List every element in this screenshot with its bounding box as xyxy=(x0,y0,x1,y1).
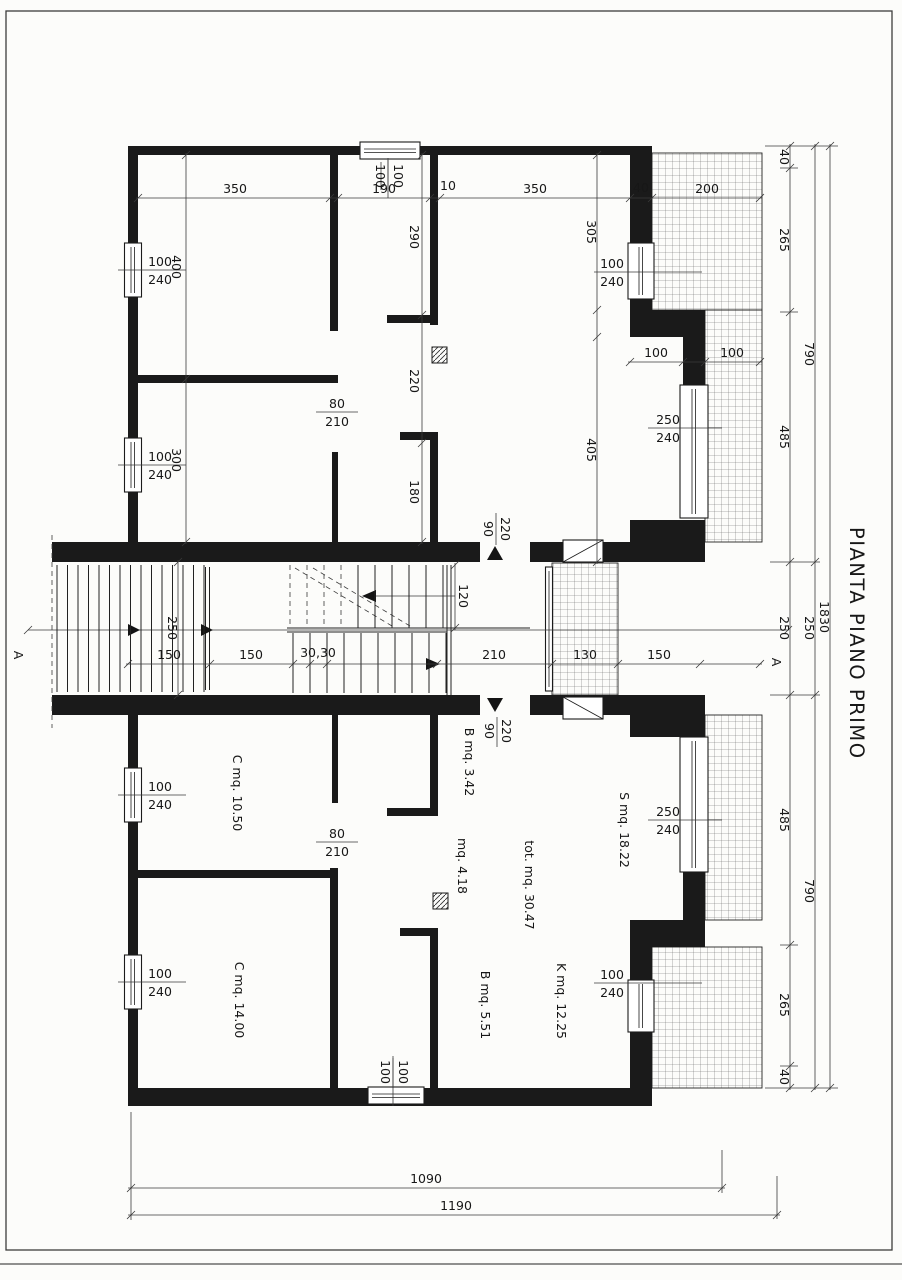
dim-room-height: 405 xyxy=(584,438,599,462)
floor-plan-sheet: 350 190 10 350 40 200 100 100 400 300 29… xyxy=(0,0,902,1280)
dim-room-height: 220 xyxy=(407,369,422,393)
dim-flight-width: 120 xyxy=(456,584,471,608)
stair-direction-arrow-up xyxy=(362,590,376,602)
chain-dim: 40 xyxy=(777,149,792,165)
dim-room-height: 180 xyxy=(407,480,422,504)
room-label-c2: C mq. 14.00 xyxy=(232,962,247,1039)
door-label-num: 80 xyxy=(329,396,345,411)
door-label-num: 90 xyxy=(482,723,497,739)
balcony-top-right xyxy=(652,153,762,310)
dim-stair: 150 xyxy=(239,647,263,662)
window-label-num: 100 xyxy=(378,1060,393,1084)
stair-direction-arrow-1 xyxy=(128,624,140,636)
dim-overall: 1090 xyxy=(410,1171,442,1186)
chain-dim: 790 xyxy=(802,879,817,903)
dim-wall: 40 xyxy=(633,180,649,195)
floor-plan-drawing: 350 190 10 350 40 200 100 100 400 300 29… xyxy=(0,0,902,1280)
window-bottom xyxy=(368,1087,424,1104)
window-right-kitchen xyxy=(628,980,654,1032)
shaft-window-left xyxy=(546,567,553,691)
dim-shaft: 130 xyxy=(573,647,597,662)
room-label-b2: B mq. 5.51 xyxy=(478,971,493,1039)
stair-direction-arrow-2 xyxy=(201,624,213,636)
dim-overall: 1190 xyxy=(440,1198,472,1213)
window-label-den: 240 xyxy=(600,985,624,1000)
window-label-den: 100 xyxy=(391,164,406,188)
door-label-den: 220 xyxy=(498,517,513,541)
flue-upper xyxy=(432,347,447,363)
balconies xyxy=(552,153,762,1088)
window-top xyxy=(360,142,420,159)
door-label-den: 210 xyxy=(325,844,349,859)
window-right-large-upper xyxy=(680,385,708,518)
dim-landing: 210 xyxy=(482,647,506,662)
dim-step: 100 xyxy=(644,345,668,360)
window-label-den: 240 xyxy=(600,274,624,289)
chain-dim: 265 xyxy=(777,993,792,1017)
room-label-kitchen: K mq. 12.25 xyxy=(554,963,569,1039)
door-label-num: 90 xyxy=(481,521,496,537)
door-label-num: 80 xyxy=(329,826,345,841)
window-label-den: 100 xyxy=(396,1060,411,1084)
room-label-disimpegno: mq. 4.18 xyxy=(455,838,470,894)
section-label-right: A xyxy=(769,658,784,667)
dim-room-height: 290 xyxy=(407,225,422,249)
window-label-num: 100 xyxy=(148,966,172,981)
room-label-totale: tot. mq. 30.47 xyxy=(522,840,537,929)
window-right-top xyxy=(628,243,654,299)
dim-stair: 150 xyxy=(157,647,181,662)
chain-dim: 40 xyxy=(777,1069,792,1085)
window-label-num: 100 xyxy=(600,256,624,271)
window-label-den: 240 xyxy=(148,272,172,287)
dim-landing: 150 xyxy=(647,647,671,662)
entry-arrow-lower-unit xyxy=(487,698,503,712)
room-label-soggiorno: S mq. 18.22 xyxy=(617,792,632,868)
dim-room-width: 350 xyxy=(223,181,247,196)
room-label-c1: C mq. 10.50 xyxy=(230,755,245,832)
chain-dim: 250 xyxy=(802,616,817,640)
flue-lower xyxy=(433,893,448,909)
window-label-num: 100 xyxy=(148,449,172,464)
chain-dim: 485 xyxy=(777,425,792,449)
dim-room-height: 305 xyxy=(584,220,599,244)
dim-room-width: 350 xyxy=(523,181,547,196)
room-label-b1: B mq. 3.42 xyxy=(462,728,477,796)
window-label-num: 250 xyxy=(656,804,680,819)
chain-dim-total: 1830 xyxy=(817,601,832,633)
door-label-den: 210 xyxy=(325,414,349,429)
balcony-bottom-right xyxy=(652,947,762,1088)
dim-treads: 30,30 xyxy=(300,645,336,660)
window-label-num: 100 xyxy=(373,164,388,188)
window-label-den: 240 xyxy=(148,984,172,999)
window-label-num: 100 xyxy=(600,967,624,982)
dim-step: 100 xyxy=(720,345,744,360)
window-label-num: 100 xyxy=(148,254,172,269)
light-shaft xyxy=(552,563,618,695)
chain-dim: 250 xyxy=(777,616,792,640)
window-label-num: 100 xyxy=(148,779,172,794)
window-right-large-lower xyxy=(680,737,708,872)
dim-stair-width: 250 xyxy=(165,616,180,640)
shaft-door-lower xyxy=(563,697,603,719)
window-label-den: 240 xyxy=(148,467,172,482)
chain-dim: 485 xyxy=(777,808,792,832)
window-label-den: 240 xyxy=(656,822,680,837)
entry-arrow-upper-unit xyxy=(487,546,503,560)
chain-dim: 790 xyxy=(802,342,817,366)
drawing-title: PIANTA PIANO PRIMO xyxy=(845,527,868,760)
balcony-right-lower xyxy=(705,715,762,920)
window-label-den: 240 xyxy=(656,430,680,445)
dim-wall: 10 xyxy=(440,178,456,193)
window-label-num: 250 xyxy=(656,412,680,427)
section-label-left: A xyxy=(11,651,26,660)
dim-balcony-width: 200 xyxy=(695,181,719,196)
door-label-den: 220 xyxy=(499,719,514,743)
chain-dim: 265 xyxy=(777,228,792,252)
window-label-den: 240 xyxy=(148,797,172,812)
